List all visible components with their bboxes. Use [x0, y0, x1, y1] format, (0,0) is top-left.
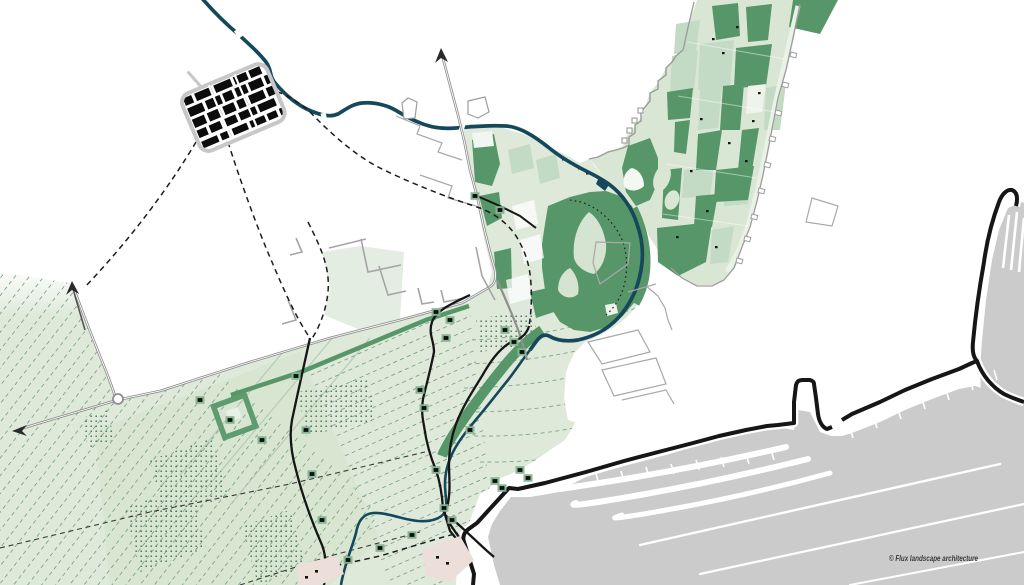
svg-text:© Flux landscape architecture: © Flux landscape architecture: [889, 553, 978, 563]
